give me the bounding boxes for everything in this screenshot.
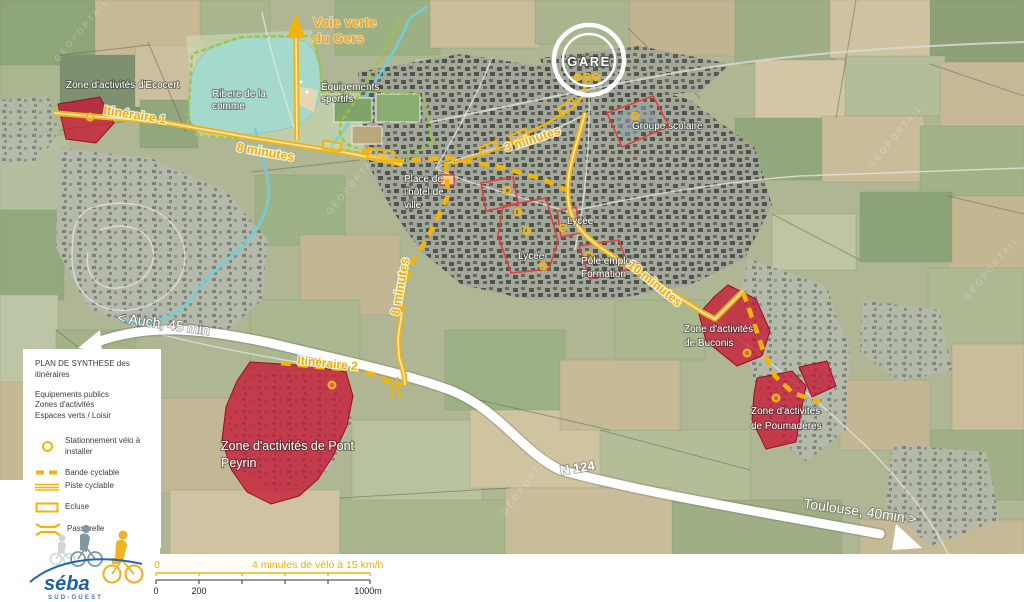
label-equipements-sportifs: sportifs bbox=[321, 94, 353, 105]
label-pole-emploi: Pôle emploi bbox=[581, 256, 633, 267]
label-pole-emploi: Formation bbox=[581, 269, 626, 280]
label-voie-verte: Voie verte bbox=[313, 15, 377, 30]
legend-cat-equipements: Equipements publics bbox=[35, 390, 153, 401]
legend-piste-label: Piste cyclable bbox=[65, 481, 114, 492]
legend-cat-espaces: Espaces verts / Loisir bbox=[35, 411, 153, 422]
legend-item-ecluse: Ecluse bbox=[35, 502, 153, 513]
scale-tick-200: 200 bbox=[191, 586, 206, 596]
label-zone-ecocert: Zone d'activités d'Ecocert bbox=[66, 80, 180, 91]
legend-parking-label: Stationnement vélo à installer bbox=[65, 436, 153, 458]
scale-line-yellow bbox=[156, 573, 370, 576]
scale-bar: 0 4 minutes de vélo à 15 km/h 0 200 1000… bbox=[148, 556, 398, 602]
label-zone-poumaderes: de Poumadères bbox=[751, 421, 822, 432]
label-gare: GARE bbox=[567, 54, 611, 69]
label-place-hotel-de-ville: ville bbox=[404, 200, 422, 211]
legend-ecluse-label: Ecluse bbox=[65, 502, 89, 513]
scale-line-black bbox=[156, 580, 370, 584]
label-zone-pont-peyrin: Peyrin bbox=[221, 456, 256, 470]
legend-title-line2: itinéraires bbox=[35, 370, 70, 379]
legend-title: PLAN DE SYNTHESE des itinéraires bbox=[35, 359, 153, 381]
legend-categories: Equipements publics Zones d'activités Es… bbox=[35, 390, 153, 422]
lake bbox=[189, 36, 320, 134]
bike-parking-icon bbox=[35, 441, 59, 452]
legend-item-parking: Stationnement vélo à installer bbox=[35, 436, 153, 458]
label-lycee-east: Lycée bbox=[567, 216, 594, 227]
label-lycee-south: Lycée bbox=[518, 251, 545, 262]
scale-tick-1000: 1000m bbox=[354, 586, 382, 596]
label-zone-pont-peyrin: Zone d'activités de Pont bbox=[221, 439, 355, 453]
logo-brand-text: séba bbox=[44, 573, 90, 595]
legend-cat-zones: Zones d'activités bbox=[35, 400, 153, 411]
label-zone-buconis: de Buconis bbox=[684, 338, 733, 349]
label-place-hotel-de-ville: l'hôtel de bbox=[404, 187, 444, 198]
label-zone-buconis: Zone d'activités bbox=[684, 324, 753, 335]
piste-cyclable-icon bbox=[35, 483, 59, 491]
label-zone-poumaderes: Zone d'activités bbox=[751, 406, 820, 417]
scale-minutes-label: 4 minutes de vélo à 15 km/h bbox=[252, 559, 383, 571]
logo-region-text: SUD-OUEST bbox=[48, 595, 103, 601]
legend-bande-label: Bande cyclable bbox=[65, 468, 119, 479]
bande-cyclable-icon bbox=[35, 470, 59, 475]
label-ribere: comme bbox=[212, 101, 245, 112]
label-groupe-scolaire: Groupe scolaire bbox=[632, 121, 703, 132]
label-place-hotel-de-ville: Place de bbox=[404, 174, 443, 185]
label-voie-verte: du Gers bbox=[313, 31, 364, 46]
ecluse-icon bbox=[35, 502, 59, 513]
legend-item-piste: Piste cyclable bbox=[35, 481, 153, 492]
legend-item-bande: Bande cyclable bbox=[35, 468, 153, 479]
legend-title-line1: PLAN DE SYNTHESE des bbox=[35, 359, 130, 368]
map-document: GEOPORTAIL GEOPORTAIL GEOPORTAIL GEOPORT… bbox=[0, 0, 1024, 602]
label-equipements-sportifs: Équipements bbox=[321, 80, 379, 93]
seba-logo: séba SUD-OUEST bbox=[26, 516, 166, 602]
label-ribere: Ribere de la bbox=[212, 89, 266, 100]
